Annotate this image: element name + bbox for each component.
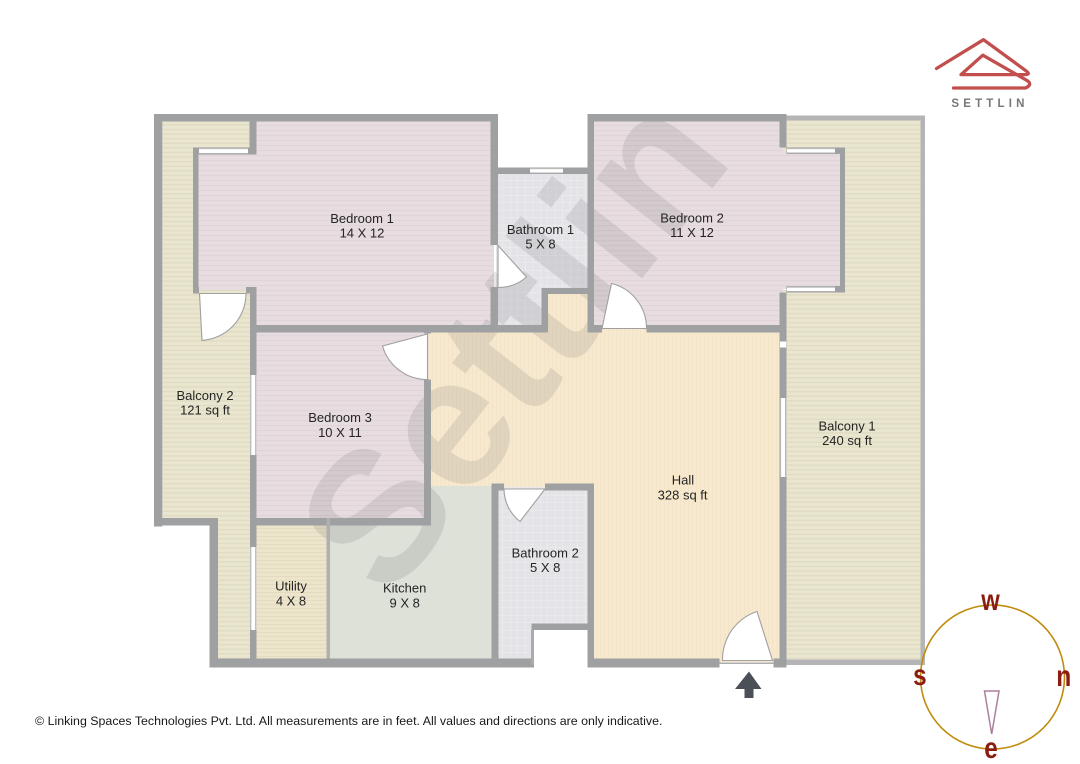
svg-text:Balcony 1: Balcony 1 — [818, 419, 875, 434]
svg-text:4 X 8: 4 X 8 — [276, 593, 306, 608]
svg-text:e: e — [984, 732, 998, 764]
svg-text:240 sq ft: 240 sq ft — [822, 433, 872, 448]
svg-text:121 sq ft: 121 sq ft — [180, 403, 230, 418]
svg-text:Kitchen: Kitchen — [383, 581, 426, 596]
svg-text:Bathroom 1: Bathroom 1 — [507, 222, 574, 237]
svg-text:s: s — [913, 659, 927, 692]
svg-text:10 X 11: 10 X 11 — [318, 425, 362, 440]
svg-text:Utility: Utility — [275, 579, 307, 594]
svg-text:w: w — [980, 584, 1000, 617]
svg-text:11 X 12: 11 X 12 — [670, 225, 714, 240]
svg-text:Bedroom 1: Bedroom 1 — [330, 211, 394, 226]
svg-text:Bathroom 2: Bathroom 2 — [512, 546, 579, 561]
svg-text:SETTLIN: SETTLIN — [951, 98, 1028, 110]
svg-text:Bedroom 2: Bedroom 2 — [660, 210, 724, 225]
svg-text:Hall: Hall — [672, 473, 695, 488]
svg-text:5 X 8: 5 X 8 — [525, 237, 555, 252]
svg-text:Balcony 2: Balcony 2 — [176, 388, 233, 403]
svg-text:n: n — [1056, 660, 1071, 693]
svg-text:328 sq ft: 328 sq ft — [658, 487, 708, 502]
svg-text:Bedroom 3: Bedroom 3 — [308, 410, 372, 425]
svg-text:9 X 8: 9 X 8 — [390, 595, 420, 610]
svg-text:5 X 8: 5 X 8 — [530, 560, 560, 575]
svg-text:© Linking Spaces Technologies: © Linking Spaces Technologies Pvt. Ltd. … — [35, 714, 662, 728]
svg-text:14 X 12: 14 X 12 — [340, 226, 385, 241]
